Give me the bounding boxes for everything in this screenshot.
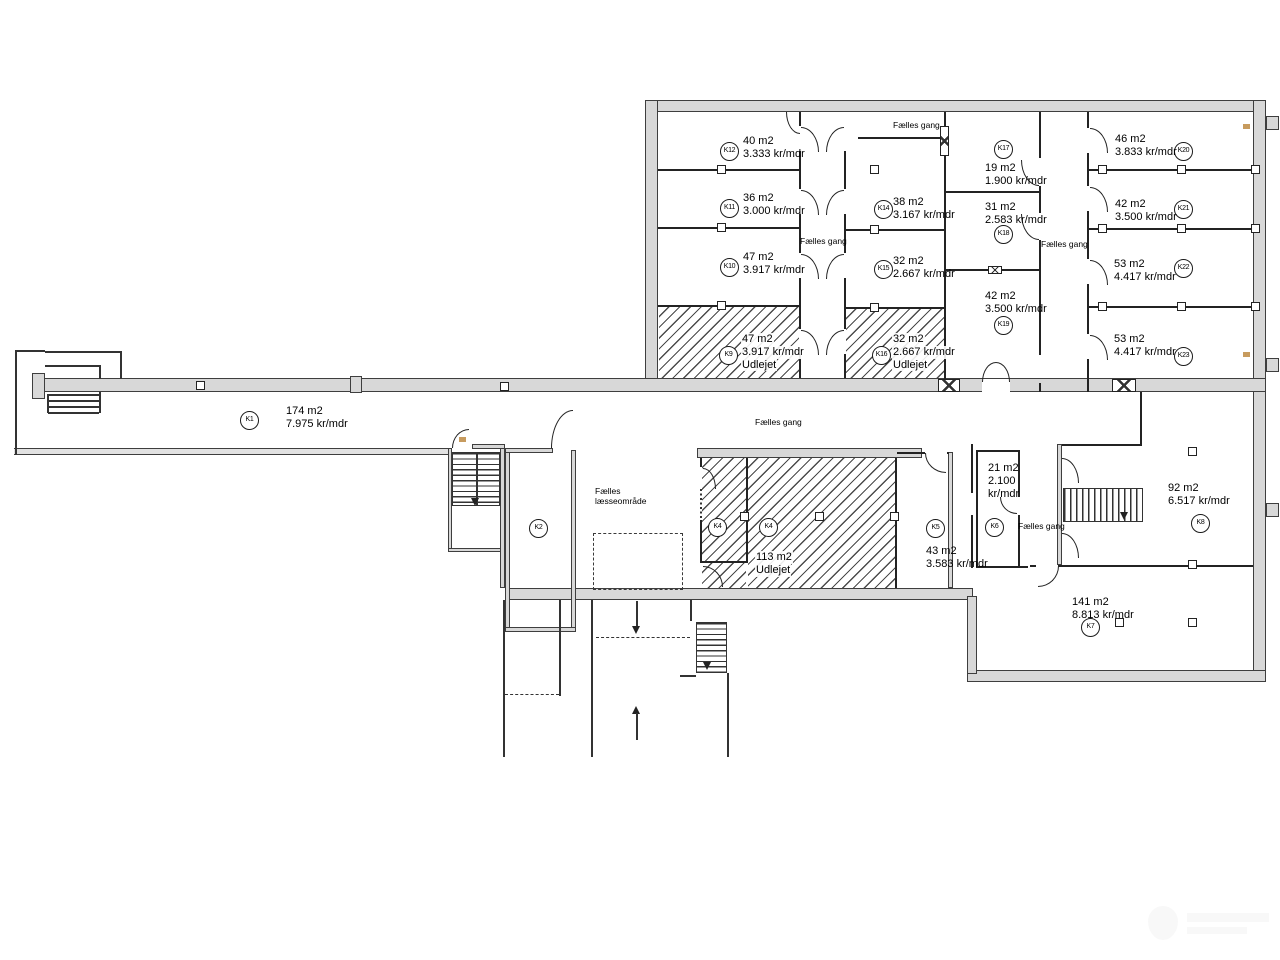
room-badge-k4-west: K4 [708,518,727,537]
room-area: 31 m2 [985,201,1047,214]
room-rent: 2.100 [988,475,1019,488]
room-badge-k5: K5 [926,519,945,538]
room-badge-k11: K11 [720,199,739,218]
door-arc [826,127,844,152]
room-badge-k18: K18 [994,225,1013,244]
wall-segment [845,229,945,231]
wall-segment [645,100,658,384]
column-marker [717,223,726,232]
exterior-stair-line [47,394,49,413]
room-area: 38 m2 [893,196,955,209]
wall-segment [1062,444,1142,446]
wall-segment [658,227,800,229]
room-rent: 2.667 kr/mdr [892,346,956,359]
column-marker [1112,379,1136,392]
ramp-line [591,600,593,757]
door-arc [1090,335,1108,360]
room-badge-k23: K23 [1174,347,1193,366]
exterior-stair-line [48,412,99,414]
column-marker [1251,165,1260,174]
arrow-line [636,601,638,627]
corridor-label: Fælles gang [1018,521,1065,531]
room-label-k11: 36 m2 3.000 kr/mdr [743,192,805,218]
room-area: 19 m2 [985,162,1047,175]
wall-segment [1087,211,1089,259]
wall-segment [14,448,450,455]
room-badge-k14: K14 [874,200,893,219]
door-arc [826,190,844,215]
exterior-stair-line [120,351,122,379]
room-label-k23: 53 m2 4.417 kr/mdr [1114,333,1176,359]
wall-segment [36,378,1266,392]
wall-segment [32,373,45,399]
room-rent: 2.583 kr/mdr [985,214,1047,227]
wall-segment [1088,169,1253,171]
room-area: 141 m2 [1072,596,1134,609]
ramp-line [680,675,696,677]
room-badge-k6: K6 [985,518,1004,537]
wall-segment [844,214,846,253]
room-area: 113 m2 [755,551,793,564]
room-area: 32 m2 [892,333,925,346]
tan-mark [1243,352,1250,357]
watermark [1145,903,1275,955]
room-area: 47 m2 [741,333,774,346]
common-area-label: Fælles læsseområde [595,486,647,506]
column-marker [988,266,1002,274]
wall-segment [645,100,1266,112]
room-badge-k8: K8 [1191,514,1210,533]
door-arc [1090,128,1108,153]
room-area: 92 m2 [1168,482,1230,495]
wall-segment [350,376,362,393]
room-area: 53 m2 [1114,333,1176,346]
column-marker [1177,302,1186,311]
room-rent: 6.517 kr/mdr [1168,495,1230,508]
column-marker [940,126,949,156]
ramp-dashed-line [596,637,690,638]
room-area: 21 m2 [988,462,1019,475]
column-marker [870,303,879,312]
column-marker [500,382,509,391]
column-marker [1098,224,1107,233]
column-marker [890,512,899,521]
room-badge-k2: K2 [529,519,548,538]
wall-segment [1039,112,1041,158]
staircase [696,622,727,673]
exterior-stair-line [99,365,101,379]
wall-segment [697,448,922,458]
corridor-label: Fælles gang [800,236,847,246]
wall-segment [1030,565,1036,567]
room-area: 42 m2 [1115,198,1177,211]
exterior-stair-line [15,350,17,455]
room-label-k15: 32 m2 2.667 kr/mdr [893,255,955,281]
column-marker [870,165,879,174]
room-label-k20: 46 m2 3.833 kr/mdr [1115,133,1177,159]
room-rent: 3.917 kr/mdr [741,346,805,359]
room-badge-k9: K9 [719,346,738,365]
exterior-stair-line [48,400,99,402]
room-badge-k12: K12 [720,142,739,161]
room-rent: 3.167 kr/mdr [893,209,955,222]
common-area-label-line2: læsseområde [595,496,647,506]
room-label-k16: 32 m2 2.667 kr/mdr Udlejet [892,333,956,371]
column-marker [1188,447,1197,456]
room-badge-k4: K4 [759,518,778,537]
tan-mark [459,437,466,442]
wall-segment [844,151,846,189]
room-badge-k16: K16 [872,346,891,365]
wall-segment [971,444,973,493]
room-area: 174 m2 [286,405,348,418]
arrow-line [636,713,638,740]
door-arc [1090,187,1108,212]
column-marker [1251,224,1260,233]
loading-area-outline [593,533,683,590]
door-arc [551,410,573,448]
wall-segment [505,627,576,632]
room-area: 46 m2 [1115,133,1177,146]
column-marker [1098,165,1107,174]
room-area: 32 m2 [893,255,955,268]
room-area: 47 m2 [743,251,805,264]
ramp-line [559,600,561,696]
room-rent: 3.583 kr/mdr [926,558,988,571]
room-rent: 8.813 kr/mdr [1072,609,1134,622]
door-arc [1038,566,1059,587]
watermark-logo [1148,906,1178,940]
room-rent: 3.500 kr/mdr [985,303,1047,316]
room-status: Udlejet [892,359,928,372]
floor-plan: K12 K11 K10 K9 K14 K15 K16 K17 K18 K19 K… [0,0,1280,960]
room-label-k4: 113 m2 Udlejet [755,551,793,577]
stair-arrow-icon [703,662,711,670]
room-rent: 3.000 kr/mdr [743,205,805,218]
wall-segment [1087,359,1089,392]
room-label-k10: 47 m2 3.917 kr/mdr [743,251,805,277]
room-label-k14: 38 m2 3.167 kr/mdr [893,196,955,222]
column-marker [740,512,749,521]
wall-segment [945,191,1040,193]
room-label-k21: 42 m2 3.500 kr/mdr [1115,198,1177,224]
room-badge-k17: K17 [994,140,1013,159]
stair-arrow-icon [1120,512,1128,520]
watermark-text-bar [1187,913,1269,922]
door-arc [996,362,1010,382]
wall-segment [1039,383,1041,392]
room-label-k6: 21 m2 2.100 kr/mdr [988,462,1019,500]
wall-segment [571,450,576,632]
room-label-k9: 47 m2 3.917 kr/mdr Udlejet [741,333,805,371]
wall-segment [1266,503,1279,517]
ramp-line [690,600,692,621]
room-area: 36 m2 [743,192,805,205]
wall-segment [1088,228,1253,230]
common-area-label-line1: Fælles [595,486,647,496]
wall-segment [897,452,925,454]
room-rent: 3.500 kr/mdr [1115,211,1177,224]
wall-segment [1087,112,1089,128]
room-label-k5: 43 m2 3.583 kr/mdr [926,545,988,571]
room-label-k17: 19 m2 1.900 kr/mdr [985,162,1047,188]
column-marker [717,165,726,174]
wall-segment [1088,306,1253,308]
exterior-stair-line [48,394,99,396]
room-rent: 1.900 kr/mdr [985,175,1047,188]
door-arc [826,254,844,279]
corridor-label: Fælles gang [755,417,802,427]
room-status: Udlejet [755,564,791,577]
room-label-k18: 31 m2 2.583 kr/mdr [985,201,1047,227]
room-rent: 4.417 kr/mdr [1114,346,1176,359]
wall-segment [1058,565,1253,567]
wall-segment [895,458,897,588]
column-marker [938,379,960,392]
watermark-text-bar [1187,927,1247,934]
door-arc [925,453,946,473]
room-badge-k1: K1 [240,411,259,430]
corridor-label: Fælles gang [1041,239,1088,249]
wall-segment [500,448,505,588]
room-area: 40 m2 [743,135,805,148]
column-marker [1251,302,1260,311]
room-badge-k19: K19 [994,316,1013,335]
room-rent: 2.667 kr/mdr [893,268,955,281]
column-marker [196,381,205,390]
room-rent: 3.917 kr/mdr [743,264,805,277]
room-area: 42 m2 [985,290,1047,303]
wall-segment [967,670,1266,682]
door-arc [826,330,844,355]
wall-segment [947,452,949,454]
room-label-k19: 42 m2 3.500 kr/mdr [985,290,1047,316]
room-rent: 4.417 kr/mdr [1114,271,1176,284]
exterior-stair-line [48,406,99,408]
room-label-k22: 53 m2 4.417 kr/mdr [1114,258,1176,284]
wall-segment [799,214,801,253]
exterior-stair-line [45,351,122,353]
column-marker [1098,302,1107,311]
room-badge-k10: K10 [720,258,739,277]
column-marker [717,301,726,310]
room-area: 53 m2 [1114,258,1176,271]
room-area: 43 m2 [926,545,988,558]
wall-segment [1266,116,1279,130]
wall-segment [976,450,1020,452]
wall-segment [1266,358,1279,372]
wall-segment [658,169,800,171]
door-arc [1062,458,1079,483]
column-marker [870,225,879,234]
exterior-stair-line [45,365,100,367]
room-label-k12: 40 m2 3.333 kr/mdr [743,135,805,161]
wall-segment [1087,284,1089,334]
wall-segment [967,596,977,674]
room-label-k8: 92 m2 6.517 kr/mdr [1168,482,1230,508]
door-arc [786,112,800,134]
tan-mark [1243,124,1250,129]
room-status: Udlejet [741,359,777,372]
corridor-label: Fælles gang [893,120,940,130]
stair-arrow-icon [471,498,479,506]
column-marker [815,512,824,521]
column-marker [1188,618,1197,627]
staircase [1063,488,1143,522]
column-marker [1177,165,1186,174]
door-arc [1062,533,1079,558]
room-label-k7: 141 m2 8.813 kr/mdr [1072,596,1134,622]
exterior-stair-line [15,350,45,352]
door-arc [982,362,996,382]
down-arrow-icon [632,626,640,634]
column-marker [1177,224,1186,233]
room-badge-k15: K15 [874,260,893,279]
room-rent: 3.333 kr/mdr [743,148,805,161]
wall-segment [505,448,510,632]
wall-segment [505,448,553,453]
wall-segment [799,278,801,329]
column-marker [1188,560,1197,569]
exterior-stair-line [99,392,101,413]
room-rent: 3.833 kr/mdr [1115,146,1177,159]
room-badge-k22: K22 [1174,259,1193,278]
ramp-dashed-line [505,694,559,695]
wall-segment [472,444,505,449]
ramp-line [727,673,729,757]
room-label-k1: 174 m2 7.975 kr/mdr [286,405,348,431]
wall-segment [1140,392,1142,444]
room-rent: kr/mdr [988,488,1019,501]
wall-segment [858,137,945,139]
ramp-line [503,600,505,757]
door-arc [1090,260,1108,285]
wall-segment [448,548,505,552]
room-rent: 7.975 kr/mdr [286,418,348,431]
